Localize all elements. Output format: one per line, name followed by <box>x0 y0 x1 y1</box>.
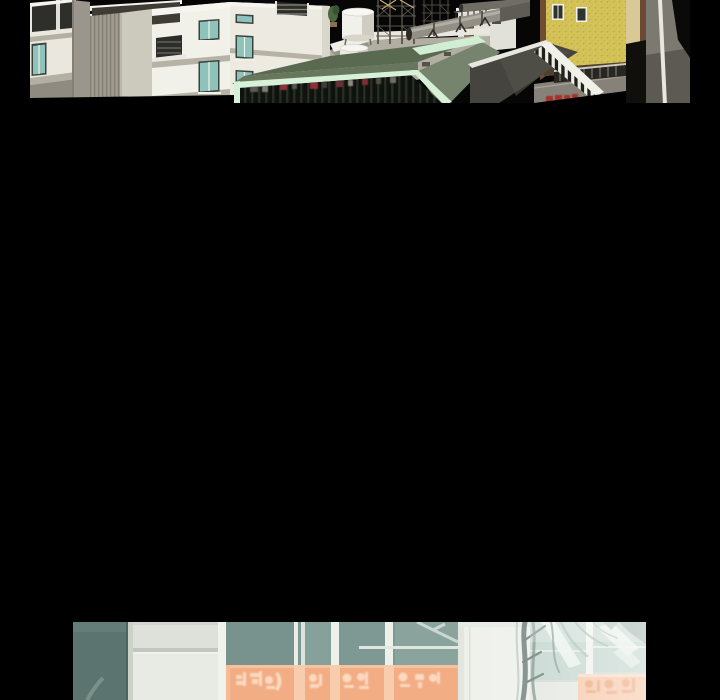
pilaster <box>218 622 226 700</box>
water-tank-upper <box>342 8 374 45</box>
overexposure-top <box>530 622 646 642</box>
far-right-alley <box>626 0 690 105</box>
comic-panel-city <box>30 0 690 105</box>
white-wall-panel <box>128 622 218 700</box>
comic-panel-storefront <box>73 622 646 700</box>
slate-panel <box>73 622 128 700</box>
city-render-art <box>30 0 690 105</box>
panel-bottom-edge <box>30 103 690 105</box>
comic-reader-page <box>0 0 720 700</box>
teal-glass-band <box>226 622 458 668</box>
glass-rail <box>359 646 458 649</box>
storefront-art <box>73 622 646 700</box>
